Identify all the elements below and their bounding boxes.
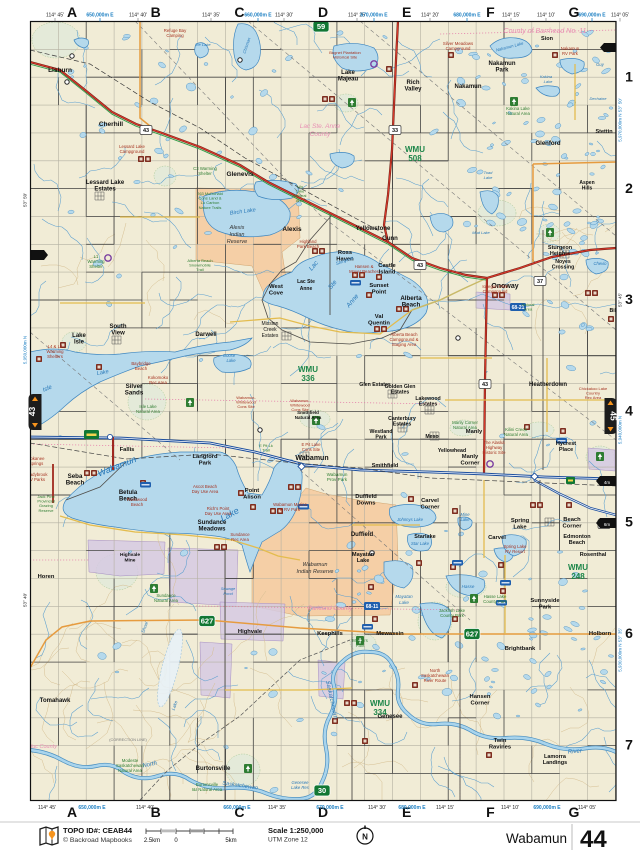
svg-text:Mud Lake: Mud Lake <box>472 230 490 235</box>
svg-text:Holborn: Holborn <box>589 631 612 637</box>
svg-text:Lessard Lake: Lessard Lake <box>86 180 125 186</box>
svg-text:Park: Park <box>375 435 386 441</box>
svg-text:Natural Area: Natural Area <box>118 768 142 773</box>
svg-text:2: 2 <box>625 180 633 196</box>
svg-text:Alexis: Alexis <box>229 225 245 231</box>
svg-text:6m: 6m <box>604 522 611 527</box>
svg-text:Sunset: Sunset <box>369 283 388 289</box>
svg-text:7: 7 <box>625 736 633 752</box>
svg-text:County Park: County Park <box>440 613 464 618</box>
svg-text:Beach: Beach <box>402 302 421 309</box>
svg-text:Quentin: Quentin <box>368 320 390 326</box>
svg-text:Historic Site: Historic Site <box>483 450 507 455</box>
svg-text:Sands: Sands <box>125 390 144 397</box>
svg-text:Rich: Rich <box>406 80 419 86</box>
svg-text:Ice Lake: Ice Lake <box>195 42 211 47</box>
svg-text:Crossing: Crossing <box>552 265 574 271</box>
svg-text:Point: Point <box>372 289 387 295</box>
svg-text:Lake: Lake <box>513 524 527 530</box>
svg-text:43: 43 <box>27 407 37 417</box>
svg-text:WMU: WMU <box>405 145 425 154</box>
svg-text:Horen: Horen <box>38 574 55 580</box>
svg-text:30: 30 <box>318 786 326 795</box>
svg-text:Trail: Trail <box>262 448 270 453</box>
svg-text:Downs: Downs <box>356 500 375 506</box>
svg-text:627: 627 <box>466 630 479 639</box>
svg-text:Estates: Estates <box>393 422 412 428</box>
svg-text:A: A <box>67 804 77 820</box>
svg-text:690,000m E: 690,000m E <box>533 805 561 811</box>
svg-text:59: 59 <box>317 22 325 31</box>
svg-text:53° 40': 53° 40' <box>23 593 28 607</box>
svg-text:5,930,000m N 53° 35': 5,930,000m N 53° 35' <box>618 628 623 672</box>
svg-text:Alexis: Alexis <box>282 226 302 233</box>
svg-text:Beach: Beach <box>131 502 144 507</box>
svg-text:114° 45': 114° 45' <box>46 13 64 19</box>
svg-text:Wabamun: Wabamun <box>506 831 567 846</box>
svg-text:Nature Trails: Nature Trails <box>199 205 222 210</box>
svg-text:Heights: Heights <box>550 251 570 257</box>
svg-text:Langford: Langford <box>192 454 218 460</box>
svg-text:Cons Site: Cons Site <box>302 447 321 452</box>
svg-text:Lake: Lake <box>460 517 470 522</box>
svg-text:43: 43 <box>482 382 488 388</box>
svg-text:Mayatan: Mayatan <box>395 594 413 599</box>
svg-text:Corner: Corner <box>420 504 440 510</box>
svg-text:Day Use Area: Day Use Area <box>192 489 219 494</box>
svg-text:Castle: Castle <box>378 263 396 269</box>
svg-text:Cons Site: Cons Site <box>291 407 309 412</box>
svg-text:44: 44 <box>580 826 607 853</box>
svg-text:114° 30': 114° 30' <box>368 805 386 811</box>
svg-text:114° 05': 114° 05' <box>578 805 596 811</box>
svg-text:Historical Site: Historical Site <box>333 55 358 60</box>
svg-text:114° 10': 114° 10' <box>501 805 519 811</box>
svg-text:Lake: Lake <box>341 70 355 76</box>
svg-text:Wabamun: Wabamun <box>295 455 328 462</box>
svg-text:Starlake: Starlake <box>414 534 435 540</box>
svg-text:& RV Park: & RV Park <box>280 507 301 512</box>
svg-text:Estates: Estates <box>94 187 116 193</box>
svg-text:E: E <box>402 4 411 20</box>
svg-text:Manly: Manly <box>462 454 479 460</box>
svg-text:Lake: Lake <box>399 600 409 605</box>
svg-text:Natural Area: Natural Area <box>453 425 477 430</box>
svg-text:Scale 1:250,000: Scale 1:250,000 <box>268 826 323 835</box>
svg-text:Fallis: Fallis <box>120 447 135 453</box>
svg-text:Isle: Isle <box>74 340 85 346</box>
svg-text:Gunn: Gunn <box>382 236 398 242</box>
svg-text:F: F <box>486 804 495 820</box>
svg-text:Beach: Beach <box>563 517 581 523</box>
svg-text:3: 3 <box>625 291 633 307</box>
svg-text:(CORRECTION LINE): (CORRECTION LINE) <box>109 738 147 742</box>
svg-text:Campground: Campground <box>483 289 508 294</box>
svg-text:336: 336 <box>301 374 315 383</box>
svg-text:Lake: Lake <box>357 558 370 564</box>
svg-text:114° 05': 114° 05' <box>611 13 629 19</box>
svg-text:Twin: Twin <box>494 738 507 744</box>
svg-text:Indian: Indian <box>230 232 245 238</box>
svg-text:Cons Site: Cons Site <box>237 404 255 409</box>
svg-text:37: 37 <box>537 279 543 285</box>
svg-text:670,000m E: 670,000m E <box>360 13 388 19</box>
svg-text:Park: Park <box>356 643 366 648</box>
svg-text:Island: Island <box>379 269 396 275</box>
svg-text:Estates: Estates <box>391 390 410 396</box>
svg-text:Lac Ste: Lac Ste <box>297 279 315 285</box>
svg-text:4m: 4m <box>604 480 611 485</box>
svg-text:Anne: Anne <box>300 286 313 292</box>
svg-text:Shelter: Shelter <box>89 264 103 269</box>
svg-text:Estates: Estates <box>262 333 279 339</box>
svg-text:Glenford: Glenford <box>536 141 561 147</box>
svg-text:WMU: WMU <box>370 699 390 708</box>
svg-text:4: 4 <box>625 402 633 418</box>
svg-text:Carvel: Carvel <box>421 498 439 504</box>
svg-text:Keephills: Keephills <box>317 631 343 637</box>
svg-text:1: 1 <box>625 69 633 85</box>
svg-text:114° 20': 114° 20' <box>421 13 439 19</box>
svg-text:660,000m E: 660,000m E <box>244 13 272 19</box>
svg-text:114° 10': 114° 10' <box>537 13 555 19</box>
svg-text:Landings: Landings <box>543 760 567 766</box>
svg-text:Lake: Lake <box>72 333 86 339</box>
svg-text:Corner: Corner <box>470 700 490 706</box>
svg-text:Shelters: Shelters <box>47 354 63 359</box>
svg-text:Brightbank: Brightbank <box>505 646 536 652</box>
svg-text:Lake: Lake <box>544 79 553 84</box>
svg-text:114° 40': 114° 40' <box>129 13 147 19</box>
svg-text:Nakamun: Nakamun <box>488 61 515 67</box>
svg-text:Beach: Beach <box>135 366 148 371</box>
svg-text:© Backroad Mapbooks: © Backroad Mapbooks <box>63 836 132 844</box>
svg-text:Shelter: Shelter <box>198 171 212 176</box>
svg-text:5,970,000m N 53° 50': 5,970,000m N 53° 50' <box>618 98 623 142</box>
svg-text:Natural Area: Natural Area <box>504 432 528 437</box>
svg-text:33: 33 <box>392 128 398 134</box>
svg-text:53° 45': 53° 45' <box>618 293 623 307</box>
svg-text:WMU: WMU <box>568 563 588 572</box>
svg-text:Camping: Camping <box>166 33 184 38</box>
svg-text:Park Beach: Park Beach <box>297 244 320 249</box>
svg-text:Hills: Hills <box>582 186 593 192</box>
svg-text:Park: Park <box>199 460 212 466</box>
svg-text:Burtonsville: Burtonsville <box>196 766 231 772</box>
svg-text:Yellowstone: Yellowstone <box>356 226 391 232</box>
svg-text:Majeau: Majeau <box>338 77 359 83</box>
svg-text:650,000m E: 650,000m E <box>86 13 114 19</box>
svg-text:Cove: Cove <box>269 290 284 296</box>
svg-text:Star Lake: Star Lake <box>411 541 430 546</box>
svg-text:Pond: Pond <box>223 591 233 596</box>
svg-text:Spring: Spring <box>511 518 530 524</box>
svg-text:I&I Natural Area: I&I Natural Area <box>192 787 223 792</box>
svg-text:43: 43 <box>143 128 149 134</box>
svg-text:650,000m E: 650,000m E <box>78 805 106 811</box>
svg-text:627: 627 <box>201 617 214 626</box>
svg-text:Beach: Beach <box>66 480 85 487</box>
svg-text:Stettin: Stettin <box>595 129 613 135</box>
svg-text:Valley: Valley <box>404 87 422 93</box>
svg-text:Wabamun: Wabamun <box>303 562 328 568</box>
svg-text:Area: Area <box>524 307 533 312</box>
svg-text:D: D <box>318 4 328 20</box>
svg-text:Lake: Lake <box>484 175 493 180</box>
svg-text:6: 6 <box>625 625 633 641</box>
svg-text:Val: Val <box>375 314 384 320</box>
svg-text:Hansen: Hansen <box>470 694 491 700</box>
svg-text:Corner: Corner <box>460 460 480 466</box>
svg-text:N: N <box>362 833 368 842</box>
svg-text:Nakamun: Nakamun <box>454 84 481 90</box>
svg-text:670,000m E: 670,000m E <box>316 805 344 811</box>
svg-text:Park: Park <box>539 604 552 610</box>
svg-text:Johnnys Lake: Johnnys Lake <box>396 517 424 522</box>
svg-text:680,000m E: 680,000m E <box>453 13 481 19</box>
svg-text:WMU: WMU <box>298 365 318 374</box>
svg-text:Dechaine: Dechaine <box>590 96 608 101</box>
svg-text:Duffield: Duffield <box>355 494 377 500</box>
svg-text:114° 15': 114° 15' <box>436 805 454 811</box>
svg-text:Highvale: Highvale <box>238 629 263 635</box>
svg-text:45: 45 <box>609 411 619 421</box>
svg-text:5: 5 <box>625 514 633 530</box>
svg-text:Corner: Corner <box>562 523 582 529</box>
svg-text:Lake: Lake <box>226 358 236 363</box>
svg-text:B: B <box>151 4 161 20</box>
svg-text:Campground: Campground <box>446 46 471 51</box>
svg-text:Hasse: Hasse <box>462 584 475 589</box>
svg-text:Carvel: Carvel <box>488 535 506 541</box>
svg-text:Park: Park <box>495 68 509 74</box>
svg-text:53° 50': 53° 50' <box>23 193 28 207</box>
svg-text:334: 334 <box>373 708 387 717</box>
svg-text:Trail: Trail <box>196 267 204 272</box>
svg-text:Prov Park: Prov Park <box>327 477 348 482</box>
svg-text:Staging Area: Staging Area <box>392 342 417 347</box>
svg-text:West: West <box>269 284 283 290</box>
svg-text:Darwell: Darwell <box>195 332 217 338</box>
svg-text:Alison: Alison <box>243 494 261 500</box>
svg-text:View: View <box>111 331 125 337</box>
svg-text:680,000m E: 680,000m E <box>398 805 426 811</box>
svg-text:F: F <box>486 4 495 20</box>
svg-text:Natural Area: Natural Area <box>295 415 322 420</box>
svg-text:114° 30': 114° 30' <box>275 13 293 19</box>
svg-text:Lac Ste. Anne: Lac Ste. Anne <box>300 123 341 130</box>
svg-text:Lake Res: Lake Res <box>291 785 310 790</box>
svg-text:Cherhill: Cherhill <box>99 121 123 128</box>
svg-text:Area: Area <box>296 198 305 203</box>
svg-text:Highvale: Highvale <box>120 552 140 558</box>
svg-text:RV Park: RV Park <box>562 51 579 56</box>
svg-text:Ravines: Ravines <box>489 744 511 750</box>
svg-text:Heatherdown: Heatherdown <box>529 382 567 388</box>
svg-text:Natural Area: Natural Area <box>506 111 530 116</box>
svg-text:Reserve: Reserve <box>39 508 55 513</box>
svg-text:Place: Place <box>559 447 573 453</box>
svg-text:Point: Point <box>245 488 260 494</box>
svg-text:C: C <box>234 4 244 20</box>
svg-text:UTM Zone 12: UTM Zone 12 <box>268 837 308 844</box>
svg-text:508: 508 <box>408 154 422 163</box>
svg-text:Meso: Meso <box>425 434 438 440</box>
svg-text:660,000m E: 660,000m E <box>223 805 251 811</box>
svg-text:County Park: County Park <box>483 599 507 604</box>
svg-text:Moyer Beaches: Moyer Beaches <box>349 269 379 274</box>
svg-text:5km: 5km <box>225 838 236 844</box>
svg-text:Mewassin: Mewassin <box>376 631 404 637</box>
svg-text:Campground: Campground <box>120 149 145 154</box>
svg-text:South: South <box>110 324 127 330</box>
svg-text:Natural Area: Natural Area <box>136 409 160 414</box>
svg-text:Mine: Mine <box>125 557 136 563</box>
svg-text:Tomahawk: Tomahawk <box>40 698 71 704</box>
svg-text:2.5km: 2.5km <box>144 838 160 844</box>
svg-text:Reserve: Reserve <box>227 239 247 245</box>
svg-text:Estates: Estates <box>419 402 438 408</box>
svg-text:Duffield: Duffield <box>351 532 374 538</box>
svg-text:Parkland County: Parkland County <box>308 606 353 612</box>
svg-text:County of Barrhead No. 11: County of Barrhead No. 11 <box>504 28 587 35</box>
svg-text:114° 35': 114° 35' <box>202 13 220 19</box>
svg-text:Lisburn: Lisburn <box>48 67 72 74</box>
svg-text:Rosenthal: Rosenthal <box>580 552 607 558</box>
svg-text:Glenevis: Glenevis <box>226 171 253 178</box>
svg-text:Guy: Guy <box>596 62 605 67</box>
svg-text:River Route: River Route <box>424 678 447 683</box>
svg-text:114° 15': 114° 15' <box>502 13 520 19</box>
svg-text:County: County <box>310 131 331 138</box>
svg-text:Day Use Area: Day Use Area <box>205 511 232 516</box>
svg-text:Beach: Beach <box>569 540 586 546</box>
svg-text:Betula: Betula <box>119 490 138 496</box>
svg-text:Rec Area: Rec Area <box>585 395 602 400</box>
svg-text:43: 43 <box>417 263 423 269</box>
svg-text:248: 248 <box>571 572 585 581</box>
svg-text:Sion: Sion <box>541 36 554 42</box>
svg-text:690,000m E: 690,000m E <box>578 13 606 19</box>
svg-text:TOPO ID#: CEAB44: TOPO ID#: CEAB44 <box>63 826 133 835</box>
svg-text:Rec Area: Rec Area <box>231 537 249 542</box>
svg-text:Smithfield: Smithfield <box>372 463 399 469</box>
svg-text:A: A <box>67 4 77 20</box>
svg-text:Natural Area: Natural Area <box>154 598 178 603</box>
svg-text:114° 40': 114° 40' <box>136 805 154 811</box>
svg-text:Meadows: Meadows <box>198 527 226 533</box>
svg-text:RV Resort: RV Resort <box>505 549 526 554</box>
svg-text:114° 45': 114° 45' <box>38 805 56 811</box>
svg-text:68-11: 68-11 <box>366 604 379 610</box>
svg-text:Indian Reserve: Indian Reserve <box>297 569 334 575</box>
svg-text:Chevio: Chevio <box>593 261 607 266</box>
svg-text:Sunnyside: Sunnyside <box>530 598 560 604</box>
svg-text:114° 35': 114° 35' <box>268 805 286 811</box>
svg-text:5,950,000m N: 5,950,000m N <box>23 336 28 364</box>
svg-text:Rec Area: Rec Area <box>149 380 167 385</box>
